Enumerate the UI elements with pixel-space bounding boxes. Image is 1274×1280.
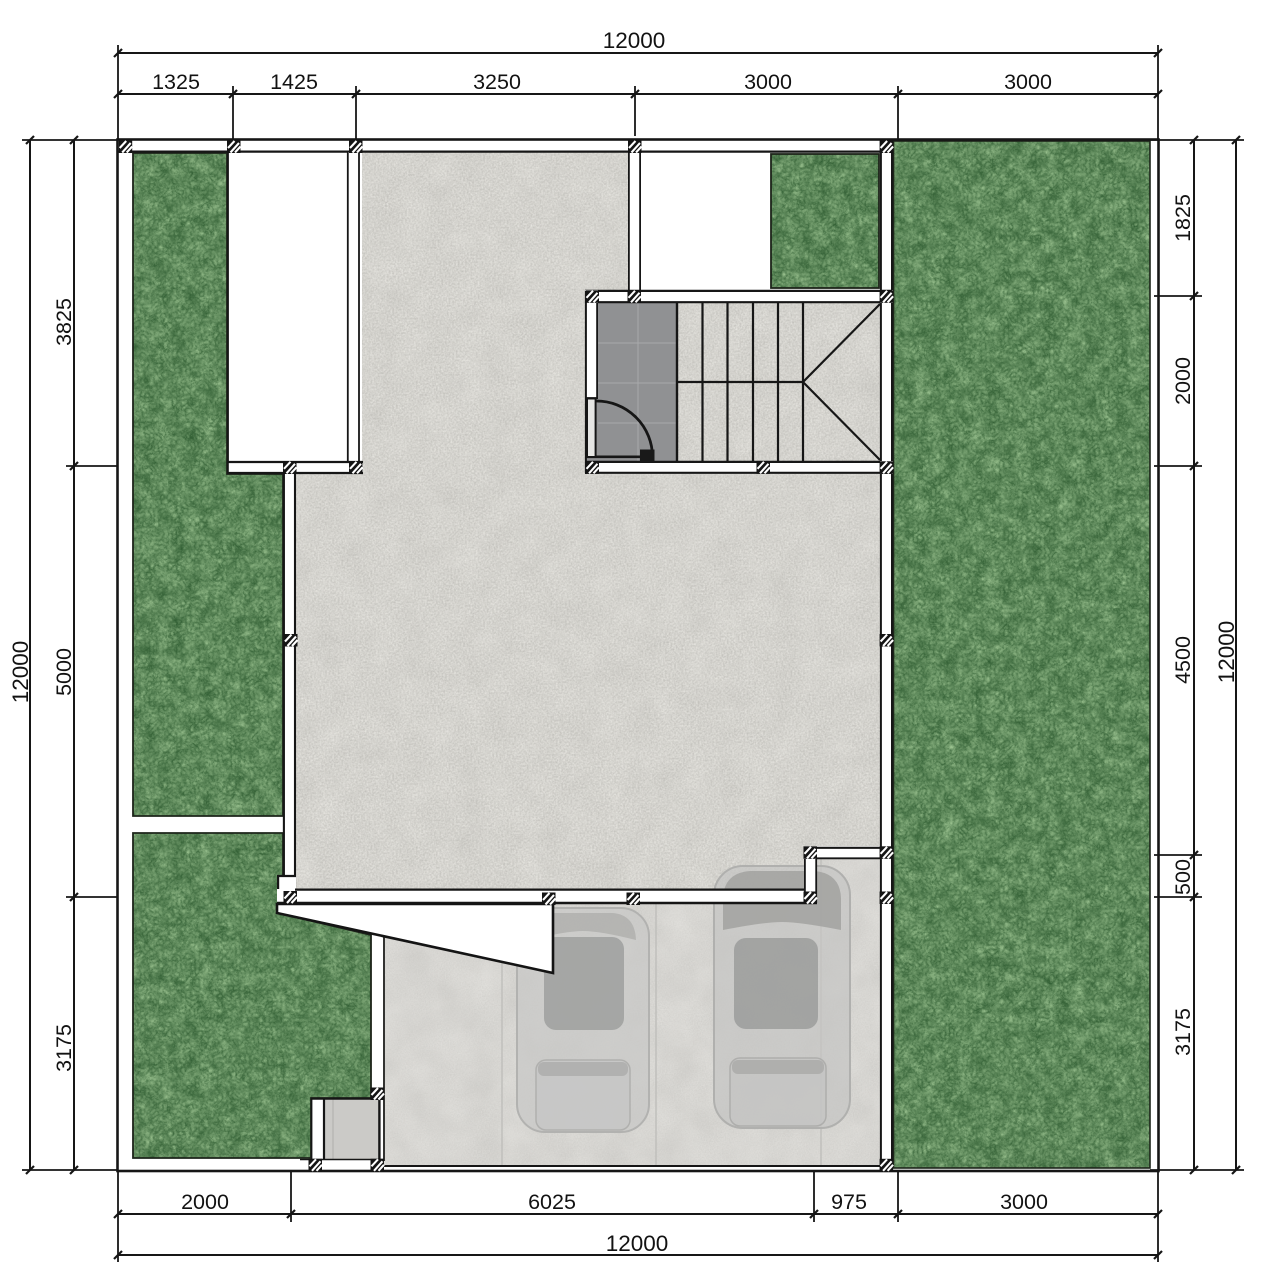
svg-text:2000: 2000 — [181, 1190, 229, 1214]
svg-text:3000: 3000 — [1004, 70, 1052, 94]
svg-text:12000: 12000 — [1214, 621, 1239, 684]
svg-text:12000: 12000 — [8, 641, 33, 704]
svg-text:6025: 6025 — [528, 1190, 576, 1214]
svg-text:3000: 3000 — [744, 70, 792, 94]
svg-text:975: 975 — [831, 1190, 867, 1214]
svg-text:3175: 3175 — [1171, 1008, 1195, 1056]
svg-text:4500: 4500 — [1171, 636, 1195, 684]
svg-text:12000: 12000 — [606, 1231, 669, 1256]
svg-text:3175: 3175 — [52, 1024, 76, 1072]
svg-text:1825: 1825 — [1171, 194, 1195, 242]
svg-text:3000: 3000 — [1000, 1190, 1048, 1214]
svg-text:1425: 1425 — [270, 70, 318, 94]
svg-text:5000: 5000 — [52, 648, 76, 696]
svg-text:3250: 3250 — [473, 70, 521, 94]
svg-text:500: 500 — [1171, 859, 1195, 895]
svg-text:12000: 12000 — [603, 28, 666, 53]
svg-text:1325: 1325 — [152, 70, 200, 94]
svg-text:2000: 2000 — [1171, 357, 1195, 405]
svg-text:3825: 3825 — [52, 298, 76, 346]
